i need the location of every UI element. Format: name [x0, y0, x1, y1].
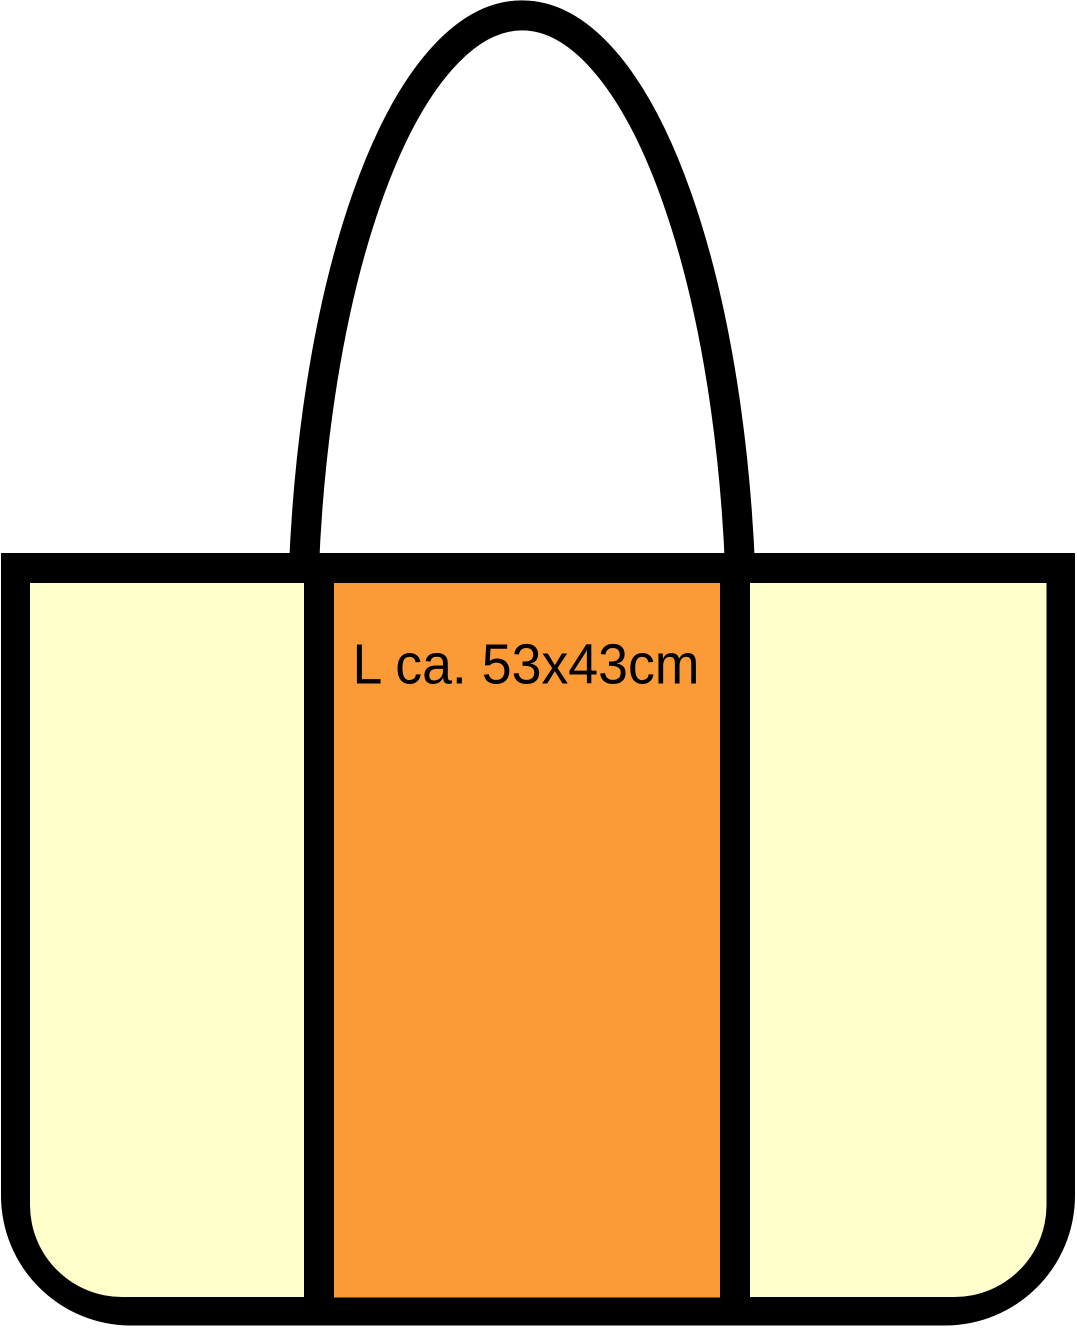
- svg-text:L ca. 53x43cm: L ca. 53x43cm: [353, 632, 700, 696]
